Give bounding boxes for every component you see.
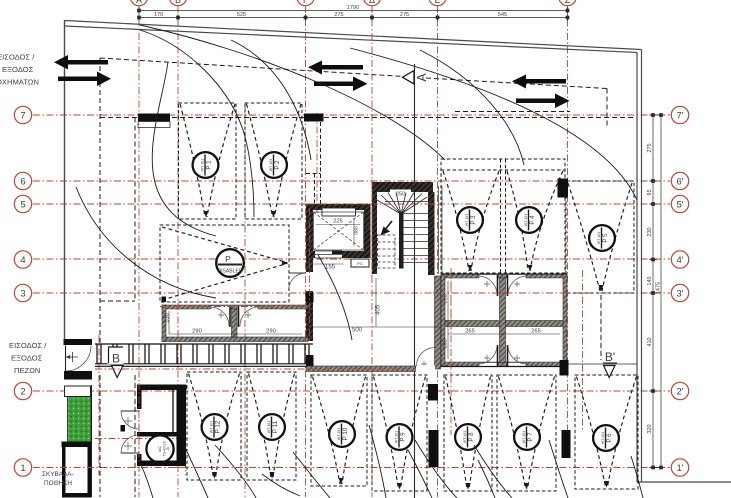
svg-text:265: 265: [531, 329, 541, 335]
svg-text:WT 101: WT 101: [337, 428, 341, 441]
svg-text:1475: 1475: [656, 282, 662, 294]
svg-text:2: 2: [20, 387, 25, 398]
svg-text:Δ: Δ: [369, 0, 375, 5]
svg-text:275: 275: [647, 143, 653, 152]
svg-text:2': 2': [676, 387, 683, 398]
svg-text:ΣΚΥΒΑΛΑ-: ΣΚΥΒΑΛΑ-: [42, 471, 74, 478]
svg-text:ΕΙΣΟΔΟΣ /: ΕΙΣΟΔΟΣ /: [9, 341, 47, 350]
svg-text:6: 6: [20, 177, 25, 188]
svg-text:410: 410: [647, 337, 653, 346]
svg-text:1': 1': [676, 463, 683, 474]
svg-text:P 7: P 7: [527, 432, 534, 442]
svg-text:7': 7': [676, 111, 683, 122]
svg-text:DISABLED: DISABLED: [218, 269, 243, 275]
svg-text:265: 265: [465, 329, 475, 335]
svg-text:080: 080: [354, 226, 360, 235]
svg-text:130: 130: [165, 313, 171, 323]
svg-text:185: 185: [443, 294, 449, 304]
svg-text:525: 525: [237, 12, 246, 18]
svg-text:185: 185: [443, 339, 449, 349]
svg-text:WT 101: WT 101: [200, 159, 204, 172]
svg-text:P 9: P 9: [400, 432, 407, 442]
svg-text:95: 95: [647, 189, 653, 195]
svg-text:WT 101: WT 101: [601, 432, 605, 445]
svg-text:170: 170: [154, 12, 163, 18]
svg-text:P 3: P 3: [470, 215, 477, 225]
svg-text:1: 1: [20, 463, 25, 474]
svg-text:A: A: [415, 73, 429, 82]
svg-text:7: 7: [20, 111, 25, 122]
svg-text:1790: 1790: [347, 5, 359, 11]
svg-text:P 12: P 12: [215, 420, 222, 433]
svg-text:B: B: [112, 352, 120, 366]
svg-text:290: 290: [192, 329, 202, 335]
svg-text:290: 290: [266, 329, 276, 335]
svg-text:P 11: P 11: [272, 420, 279, 433]
svg-text:ΟΧΗΜΑΤΩΝ: ΟΧΗΜΑΤΩΝ: [0, 78, 39, 87]
svg-text:3: 3: [20, 289, 25, 300]
svg-text:PC: PC: [357, 261, 363, 266]
svg-text:5: 5: [20, 200, 25, 211]
svg-text:IAC: IAC: [158, 446, 162, 453]
svg-text:WT 101: WT 101: [524, 214, 528, 227]
svg-text:WT 101: WT 101: [463, 431, 467, 444]
svg-text:WT 101: WT 101: [269, 159, 273, 172]
svg-text:ΕΞΟΔΟΣ: ΕΞΟΔΟΣ: [2, 65, 34, 74]
svg-text:Z: Z: [565, 0, 571, 5]
svg-text:4': 4': [676, 255, 683, 266]
svg-text:ΕΞΟΔΟΣ: ΕΞΟΔΟΣ: [11, 354, 43, 363]
svg-text:P 5: P 5: [602, 233, 609, 243]
svg-text:275: 275: [400, 12, 409, 18]
svg-text:WT 101: WT 101: [465, 214, 469, 227]
svg-text:5': 5': [676, 200, 683, 211]
svg-text:P 2: P 2: [274, 160, 281, 170]
svg-text:4: 4: [20, 255, 25, 266]
svg-text:P: P: [225, 254, 231, 264]
svg-text:P 4: P 4: [529, 215, 536, 225]
svg-text:ΕΙΣΟΔΟΣ /: ΕΙΣΟΔΟΣ /: [0, 53, 35, 62]
svg-text:E: E: [434, 0, 440, 5]
svg-text:145: 145: [647, 276, 653, 285]
svg-text:500: 500: [352, 328, 363, 334]
svg-text:A: A: [136, 0, 142, 5]
svg-text:P 1: P 1: [206, 160, 213, 170]
svg-text:WT 101: WT 101: [267, 421, 271, 434]
svg-text:ΠΕΖΩΝ: ΠΕΖΩΝ: [14, 366, 40, 375]
svg-text:P 8: P 8: [468, 432, 475, 442]
svg-text:WT 101: WT 101: [209, 421, 213, 434]
svg-text:225: 225: [333, 219, 343, 225]
svg-text:P 6: P 6: [606, 433, 613, 443]
svg-text:Γ: Γ: [303, 0, 308, 5]
svg-text:P 10: P 10: [342, 427, 349, 440]
svg-text:ΠΟΘΗΚΗ: ΠΟΘΗΚΗ: [44, 480, 72, 487]
svg-text:B: B: [175, 0, 181, 5]
svg-text:WT 101: WT 101: [522, 431, 526, 444]
svg-text:320: 320: [647, 424, 653, 433]
svg-text:405: 405: [376, 304, 382, 315]
svg-text:WT 101: WT 101: [597, 232, 601, 245]
svg-text:230: 230: [647, 227, 653, 236]
svg-text:275: 275: [334, 12, 343, 18]
svg-text:545: 545: [498, 12, 507, 18]
svg-text:WT 101: WT 101: [394, 431, 398, 444]
svg-text:6': 6': [676, 177, 683, 188]
svg-text:B': B': [605, 350, 615, 364]
svg-text:3': 3': [676, 289, 683, 300]
